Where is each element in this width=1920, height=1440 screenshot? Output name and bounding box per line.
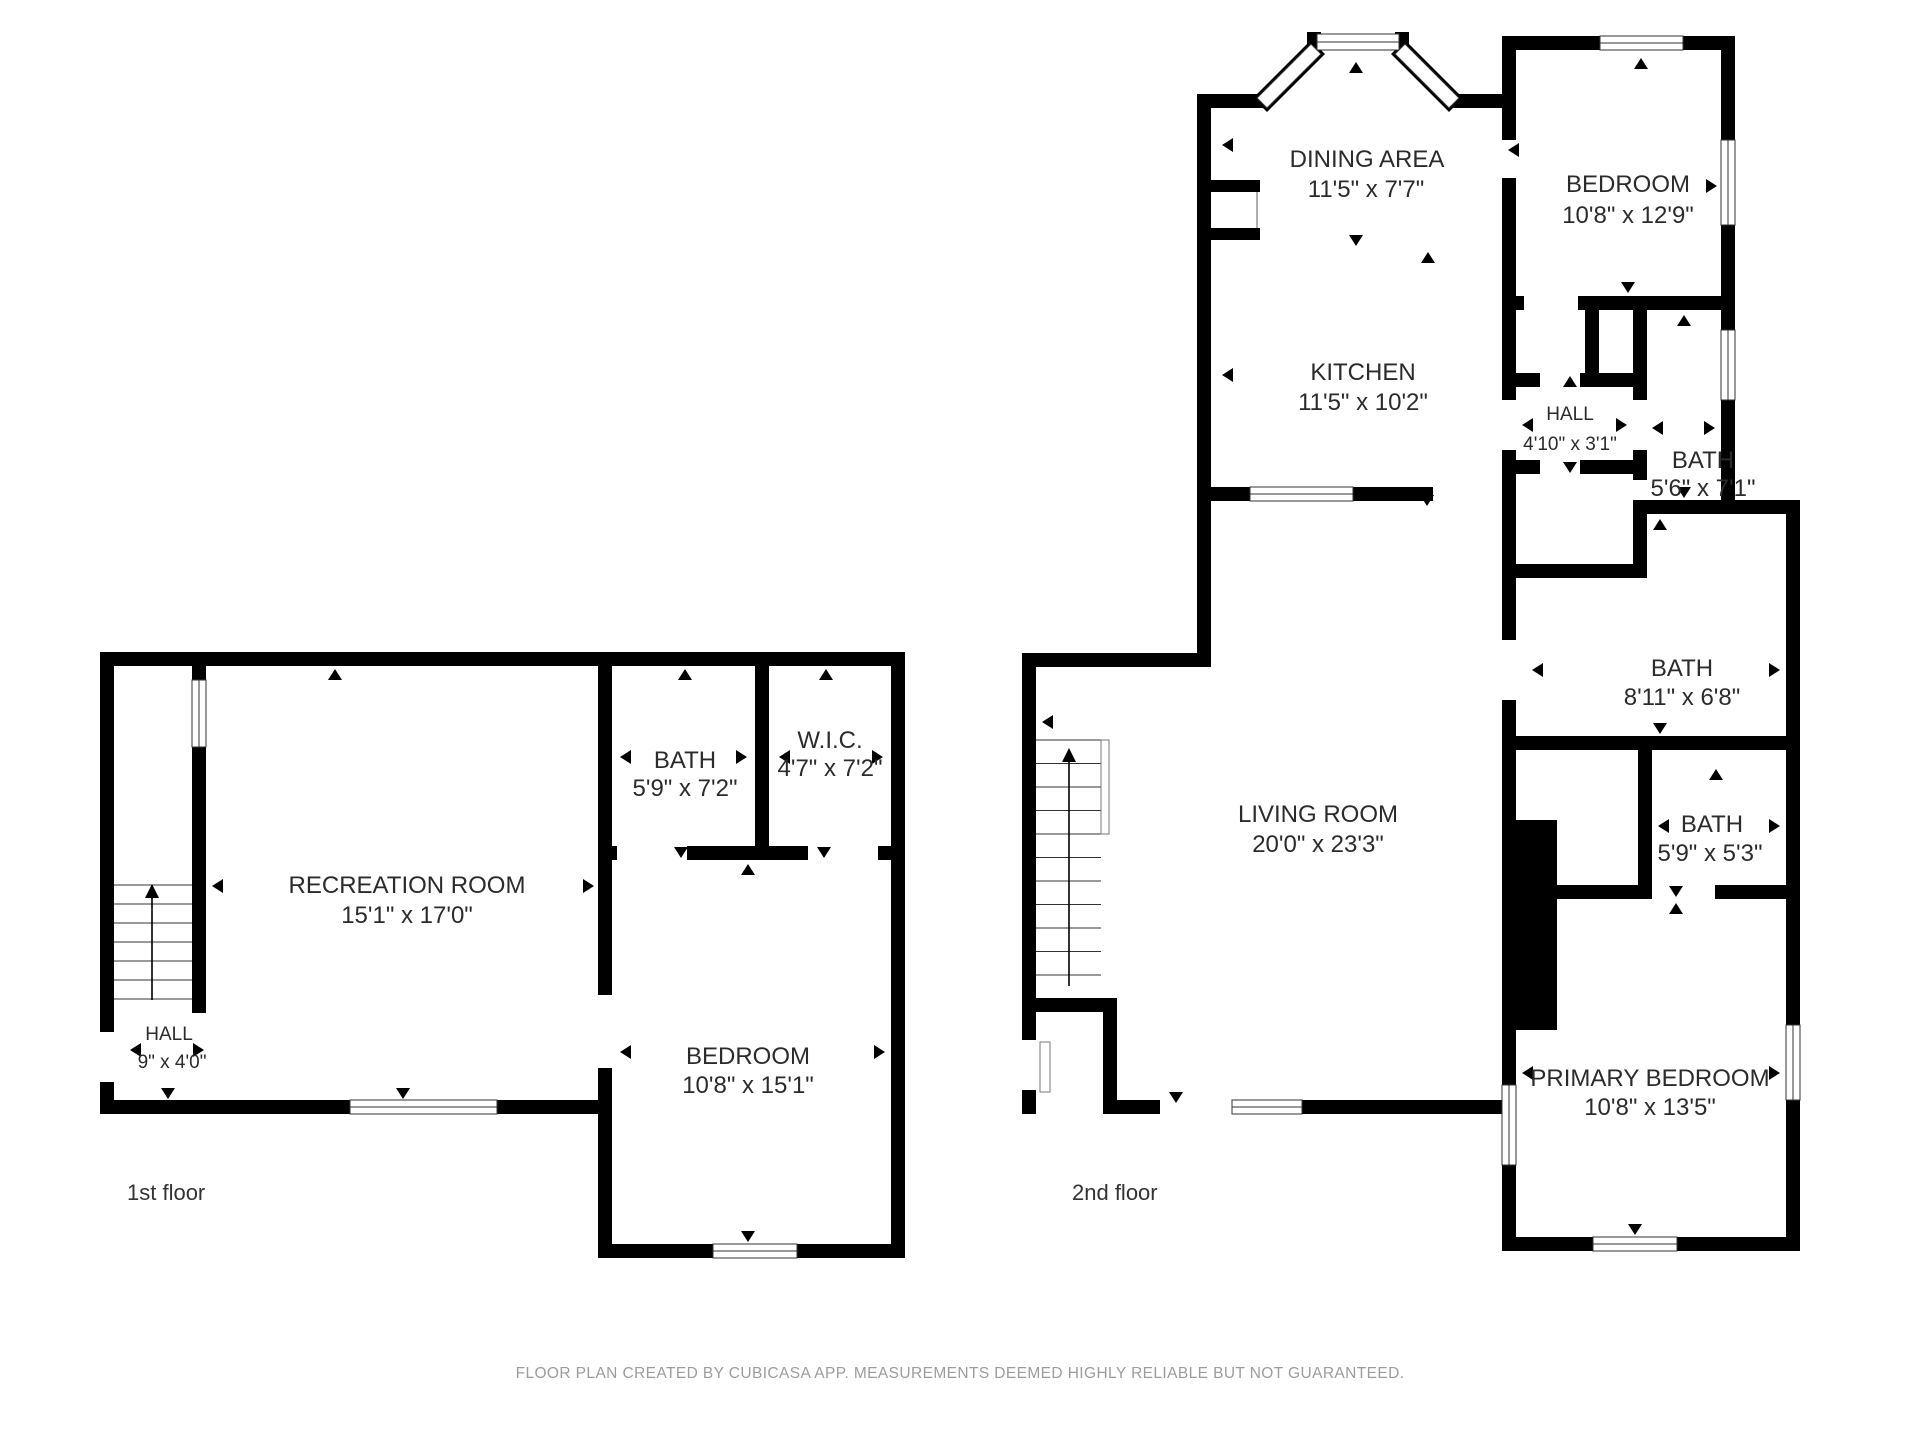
room-dims-wic: 4'7" x 7'2" <box>778 755 883 782</box>
room-label-bath-1f: BATH <box>654 747 716 774</box>
room-dims-bath-1f: 5'9" x 7'2" <box>633 775 738 802</box>
up-arrow-icon <box>1677 315 1691 326</box>
room-dims-bath1: 5'6" x 7'1" <box>1651 475 1756 502</box>
room-label-bath1: BATH <box>1672 447 1734 474</box>
room-label-hall-1f: HALL <box>145 1024 193 1045</box>
second-floor-stairs-arrow <box>1040 740 1109 1092</box>
right-arrow-icon <box>1616 418 1627 432</box>
up-arrow-icon <box>819 669 833 680</box>
left-arrow-icon <box>1508 143 1519 157</box>
room-label-kitchen: KITCHEN <box>1310 359 1415 386</box>
room-dims-living: 20'0" x 23'3" <box>1252 831 1384 858</box>
up-arrow-icon <box>1563 376 1577 387</box>
room-label-recreation: RECREATION ROOM <box>289 872 526 899</box>
down-arrow-icon <box>161 1088 175 1099</box>
right-arrow-icon <box>1769 1066 1780 1080</box>
down-arrow-icon <box>674 847 688 858</box>
first-floor-walls <box>100 652 905 1258</box>
down-arrow-icon <box>396 1088 410 1099</box>
first-floor-room-labels: RECREATION ROOM 15'1" x 17'0" BATH 5'9" … <box>138 727 883 1099</box>
up-arrow-icon <box>741 864 755 875</box>
door-leaf-icon <box>1040 1042 1050 1092</box>
right-arrow-icon <box>736 750 747 764</box>
room-label-bath3: BATH <box>1681 811 1743 838</box>
room-dims-bath2: 8'11" x 6'8" <box>1624 684 1741 711</box>
left-arrow-icon <box>620 1045 631 1059</box>
left-arrow-icon <box>1222 368 1233 382</box>
left-arrow-icon <box>1222 138 1233 152</box>
room-dims-hall-2f: 4'10" x 3'1" <box>1523 434 1617 455</box>
room-dims-bedroom-1f: 10'8" x 15'1" <box>682 1072 814 1099</box>
down-arrow-icon <box>1653 723 1667 734</box>
right-arrow-icon <box>874 1045 885 1059</box>
down-arrow-icon <box>1621 282 1635 293</box>
up-arrow-icon <box>1669 903 1683 914</box>
floorplan-canvas: RECREATION ROOM 15'1" x 17'0" BATH 5'9" … <box>0 0 1920 1440</box>
down-arrow-icon <box>817 847 831 858</box>
room-label-hall-2f: HALL <box>1546 404 1594 425</box>
room-dims-dining: 11'5" x 7'7" <box>1308 176 1425 203</box>
room-dims-bath3: 5'9" x 5'3" <box>1658 840 1763 867</box>
up-arrow-icon <box>328 669 342 680</box>
room-label-bath2: BATH <box>1651 655 1713 682</box>
down-arrow-icon <box>1628 1224 1642 1235</box>
room-label-dining: DINING AREA <box>1290 146 1445 173</box>
room-label-living: LIVING ROOM <box>1238 801 1398 828</box>
room-dims-hall-1f: 9" x 4'0" <box>138 1052 207 1073</box>
down-arrow-icon <box>1563 462 1577 473</box>
room-dims-bedroom-2f: 10'8" x 12'9" <box>1562 202 1694 229</box>
left-arrow-icon <box>1532 663 1543 677</box>
first-floor-stairs <box>114 885 192 999</box>
left-arrow-icon <box>1658 819 1669 833</box>
down-arrow-icon <box>1669 886 1683 897</box>
room-label-wic: W.I.C. <box>797 727 862 754</box>
footer-disclaimer: FLOOR PLAN CREATED BY CUBICASA APP. MEAS… <box>516 1365 1405 1382</box>
room-dims-kitchen: 11'5" x 10'2" <box>1298 389 1428 416</box>
down-arrow-icon <box>741 1231 755 1242</box>
room-dims-primary: 10'8" x 13'5" <box>1584 1094 1716 1121</box>
right-arrow-icon <box>1704 421 1715 435</box>
down-arrow-icon <box>1169 1092 1183 1103</box>
room-label-primary: PRIMARY BEDROOM <box>1530 1065 1769 1092</box>
up-arrow-icon <box>1421 252 1435 263</box>
right-arrow-icon <box>1769 663 1780 677</box>
second-floor-label: 2nd floor <box>1072 1180 1158 1205</box>
left-arrow-icon <box>620 750 631 764</box>
room-dims-recreation: 15'1" x 17'0" <box>341 902 473 929</box>
right-arrow-icon <box>1769 819 1780 833</box>
right-arrow-icon <box>1706 179 1717 193</box>
down-arrow-icon <box>1349 235 1363 246</box>
right-arrow-icon <box>583 879 594 893</box>
up-arrow-icon <box>1634 58 1648 69</box>
up-arrow-icon <box>1709 769 1723 780</box>
left-arrow-icon <box>212 879 223 893</box>
left-arrow-icon <box>1042 715 1053 729</box>
up-arrow-icon <box>678 669 692 680</box>
left-arrow-icon <box>1522 418 1533 432</box>
room-label-bedroom-2f: BEDROOM <box>1566 171 1690 198</box>
first-floor-label: 1st floor <box>127 1180 205 1205</box>
up-arrow-icon <box>1653 519 1667 530</box>
room-label-bedroom-1f: BEDROOM <box>686 1043 810 1070</box>
left-arrow-icon <box>1652 421 1663 435</box>
up-arrow-icon <box>1349 62 1363 73</box>
